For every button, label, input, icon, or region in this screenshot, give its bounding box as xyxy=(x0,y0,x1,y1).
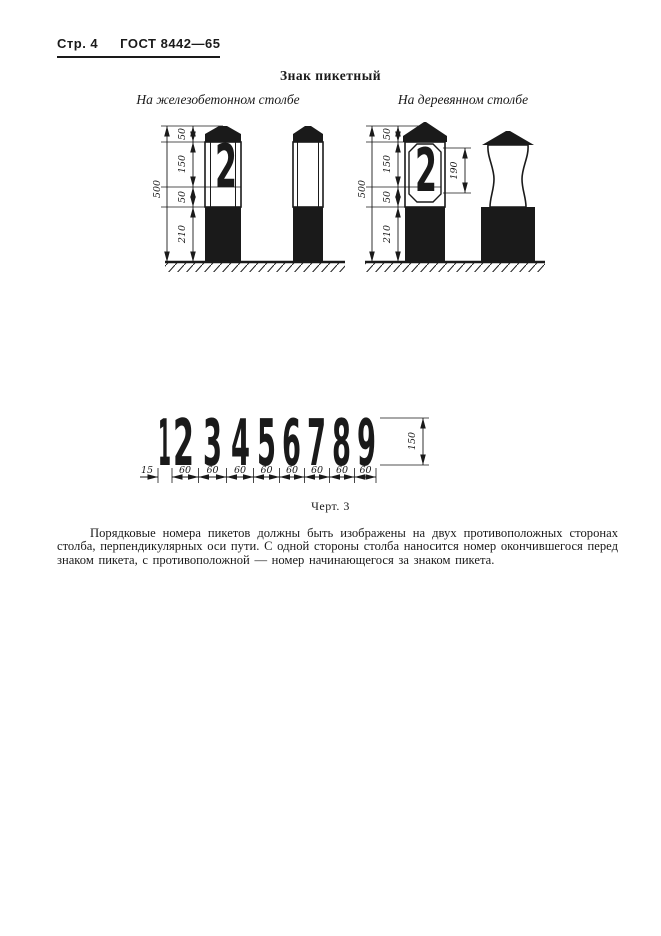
dim-total-height: 500 xyxy=(357,180,368,198)
post-base xyxy=(481,207,535,262)
post-body xyxy=(488,145,528,207)
dim-base: 210 xyxy=(382,225,393,244)
wood-post-front: 2 xyxy=(403,122,447,262)
digit-1: 1 xyxy=(158,407,171,481)
dim-cap: 50 xyxy=(177,128,188,140)
dim-digit-width: 60 xyxy=(179,465,191,476)
dim-digit-width: 60 xyxy=(260,465,272,476)
figure-title: Знак пикетный xyxy=(0,68,661,84)
digits-size-drawing: 1 2 3 4 5 6 7 8 9 15 60 60 60 60 60 60 6… xyxy=(130,405,440,495)
page-header: Стр. 4ГОСТ 8442—65 xyxy=(57,36,220,58)
dim-digit-width: 60 xyxy=(234,465,246,476)
digit-height-dimension: 150 xyxy=(380,418,429,465)
post-cap xyxy=(293,126,323,142)
body-paragraph: Порядковые номера пикетов должны быть из… xyxy=(57,527,618,567)
wood-post-side xyxy=(481,131,535,262)
concrete-post-front: 2 xyxy=(205,126,241,262)
dim-digit-height: 150 xyxy=(407,432,418,450)
dim-digit-width: 60 xyxy=(359,465,371,476)
dim-digit-width: 60 xyxy=(311,465,323,476)
picket-posts-drawing: 2 500 50 150 50 210 xyxy=(130,105,590,295)
dim-board-height: 190 xyxy=(449,161,460,179)
ground-hatch xyxy=(365,263,545,272)
dim-cap: 50 xyxy=(382,128,393,140)
page-number: Стр. 4 xyxy=(57,36,98,51)
post-number: 2 xyxy=(215,132,237,202)
dim-gap: 50 xyxy=(382,191,393,203)
dim-total-height: 500 xyxy=(152,180,163,198)
dim-gap: 50 xyxy=(177,191,188,203)
dim-plate: 150 xyxy=(382,155,393,173)
post-number: 2 xyxy=(415,136,437,206)
post-base xyxy=(405,207,445,262)
dim-plate: 150 xyxy=(177,155,188,173)
wood-posts-figure: 2 500 50 150 50 210 19 xyxy=(357,122,545,272)
dim-base: 210 xyxy=(177,225,188,244)
standard-number: ГОСТ 8442—65 xyxy=(120,36,220,51)
figure-caption: Черт. 3 xyxy=(0,499,661,514)
dim-one-width: 15 xyxy=(141,465,153,476)
concrete-post-side xyxy=(293,126,323,262)
ground-hatch xyxy=(165,263,345,272)
dim-digit-width: 60 xyxy=(286,465,298,476)
post-cap xyxy=(482,131,534,145)
post-base xyxy=(205,207,241,262)
concrete-posts-figure: 2 500 50 150 50 210 xyxy=(152,126,345,272)
dim-digit-width: 60 xyxy=(206,465,218,476)
dim-digit-width: 60 xyxy=(336,465,348,476)
post-base xyxy=(293,207,323,262)
